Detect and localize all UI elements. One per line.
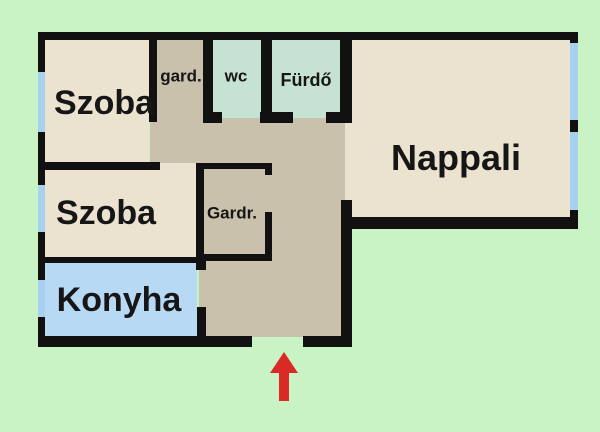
room-szoba2-label: Szoba	[56, 196, 156, 230]
room-konyha-label: Konyha	[57, 283, 182, 317]
floor-plan: Szoba Szoba Konyha Nappali gard. wc Fürd…	[0, 0, 600, 432]
gardrob-wall-right	[265, 212, 272, 258]
room-gardrob-label: Gardr.	[207, 205, 257, 222]
wall-wc-left	[203, 32, 213, 112]
wall-nappali-bottom	[345, 217, 578, 229]
hallway-floor	[199, 112, 345, 337]
room-szoba1-label: Szoba	[54, 86, 154, 120]
window-konyha	[38, 280, 45, 317]
gardrob-wall-right-stub	[265, 163, 272, 175]
gardrob-wall-bottom	[199, 254, 272, 261]
window-szoba1	[38, 72, 45, 132]
room-nappali-floor	[345, 40, 570, 218]
room-nappali-label: Nappali	[391, 140, 521, 176]
wall-wc-left-stub	[203, 112, 222, 123]
wall-hall-right-lower	[341, 200, 352, 347]
entrance-arrow-head	[270, 352, 298, 373]
wall-bottom-left	[38, 336, 252, 347]
entrance-arrow-shaft	[279, 373, 289, 401]
wall-szoba-divider	[38, 162, 160, 170]
window-nappali-upper	[570, 43, 578, 120]
wall-wc-furdo-divider	[261, 32, 272, 112]
wall-konyha-right-lower	[197, 307, 206, 343]
wall-top	[38, 32, 578, 40]
room-gard-label: gard.	[160, 68, 202, 85]
wall-nappali-left-upper	[340, 32, 352, 123]
wall-konyha-divider	[38, 257, 206, 263]
room-furdo-label: Fürdő	[281, 71, 332, 89]
room-wc-label: wc	[225, 68, 248, 85]
window-szoba2	[38, 185, 45, 232]
wall-wc-furdo-stub	[260, 112, 293, 123]
gardrob-wall-top	[196, 163, 272, 169]
window-nappali-lower	[570, 132, 578, 210]
